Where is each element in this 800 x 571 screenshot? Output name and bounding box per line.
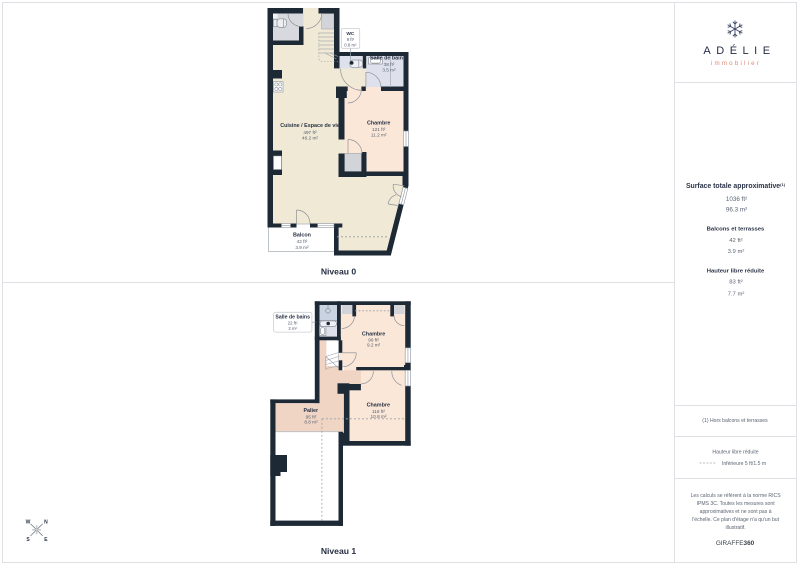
- svg-text:11.2 m²: 11.2 m²: [371, 133, 387, 138]
- svg-text:42 ft²: 42 ft²: [297, 239, 308, 244]
- svg-text:N: N: [44, 519, 48, 525]
- svg-text:Hauteur libre réduite: Hauteur libre réduite: [712, 450, 758, 456]
- svg-text:497 ft²: 497 ft²: [303, 130, 317, 135]
- svg-text:IPMS 3C. Toutes les mesures so: IPMS 3C. Toutes les mesures sont: [697, 501, 776, 507]
- svg-text:9 ft²: 9 ft²: [347, 37, 355, 42]
- svg-text:7.7 m²: 7.7 m²: [728, 292, 745, 298]
- svg-text:(1) Hors balcons et terrasses: (1) Hors balcons et terrasses: [702, 418, 768, 424]
- svg-text:10.8 m²: 10.8 m²: [371, 414, 387, 419]
- svg-text:83 ft²: 83 ft²: [729, 279, 742, 285]
- svg-text:3.5 m²: 3.5 m²: [382, 68, 396, 73]
- svg-text:96.3 m²: 96.3 m²: [726, 206, 747, 213]
- svg-text:GIRAFFE360: GIRAFFE360: [716, 540, 755, 547]
- svg-text:46.2 m²: 46.2 m²: [302, 135, 318, 140]
- svg-text:W: W: [26, 519, 31, 525]
- svg-text:Balcon: Balcon: [293, 233, 311, 239]
- svg-text:42 ft²: 42 ft²: [729, 238, 742, 244]
- svg-text:Niveau 0: Niveau 0: [321, 267, 357, 277]
- svg-text:immobilier: immobilier: [711, 60, 761, 67]
- svg-text:Niveau 1: Niveau 1: [321, 546, 357, 556]
- svg-text:9.2 m²: 9.2 m²: [367, 343, 381, 348]
- svg-text:Inférieure 5 ft/1.5 m: Inférieure 5 ft/1.5 m: [722, 461, 766, 467]
- svg-text:121 ft²: 121 ft²: [372, 127, 386, 132]
- svg-text:Surface totale approximative(1: Surface totale approximative(1): [686, 182, 786, 190]
- svg-text:Les calculs se réfèrent à la n: Les calculs se réfèrent à la norme RICS: [691, 493, 782, 499]
- svg-text:0.8 m²: 0.8 m²: [344, 43, 357, 48]
- svg-text:Salle de bains: Salle de bains: [370, 56, 406, 62]
- svg-text:approximatives et ne sont pas: approximatives et ne sont pas à: [700, 509, 772, 515]
- svg-text:1036 ft²: 1036 ft²: [726, 196, 747, 203]
- svg-text:Hauteur libre réduite: Hauteur libre réduite: [707, 268, 765, 274]
- svg-text:2 m²: 2 m²: [288, 326, 297, 331]
- svg-text:Chambre: Chambre: [367, 120, 390, 126]
- svg-text:Palier: Palier: [303, 408, 319, 414]
- svg-text:8.8 m²: 8.8 m²: [304, 419, 318, 424]
- svg-text:38 ft²: 38 ft²: [384, 62, 395, 67]
- svg-text:Chambre: Chambre: [362, 332, 385, 338]
- svg-text:l'échelle. Ce plan d'étage n'a: l'échelle. Ce plan d'étage n'a qu'un but: [692, 517, 779, 523]
- svg-text:Cuisine / Espace de vie: Cuisine / Espace de vie: [280, 123, 340, 129]
- svg-text:3.9 m²: 3.9 m²: [295, 245, 309, 250]
- svg-text:Balcons et terrasses: Balcons et terrasses: [707, 227, 765, 233]
- svg-text:3.9 m²: 3.9 m²: [728, 249, 745, 255]
- svg-text:illustratif.: illustratif.: [726, 525, 746, 531]
- svg-text:ADÉLIE: ADÉLIE: [703, 44, 775, 57]
- svg-text:Chambre: Chambre: [367, 402, 390, 408]
